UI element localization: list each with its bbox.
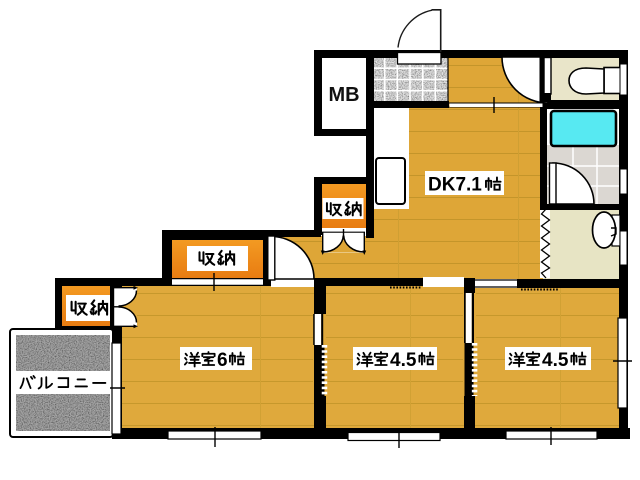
svg-text:DK7.1: DK7.1	[428, 175, 482, 196]
svg-text:6: 6	[217, 350, 228, 371]
svg-text:MB: MB	[328, 84, 359, 106]
svg-text:4.5: 4.5	[542, 350, 569, 371]
svg-text:4.5: 4.5	[390, 350, 417, 371]
